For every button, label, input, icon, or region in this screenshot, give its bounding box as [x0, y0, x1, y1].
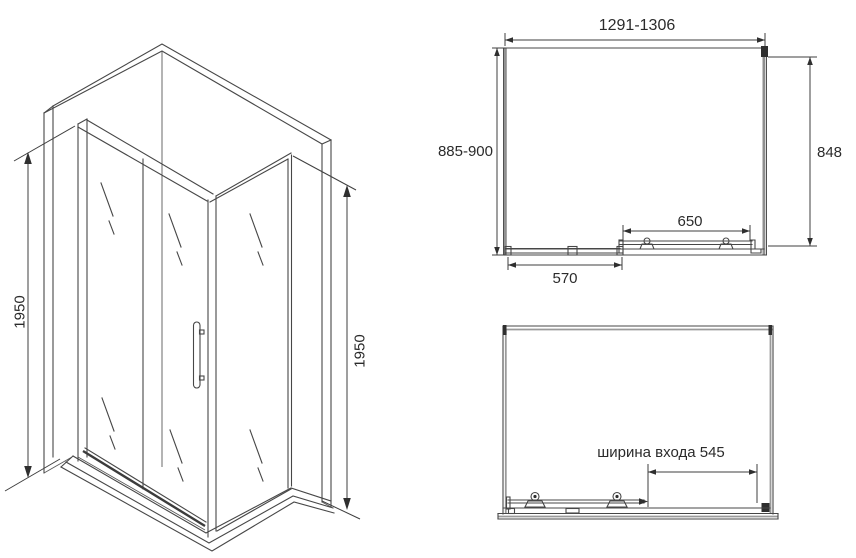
glass-reflections [101, 183, 263, 481]
front-view-door-rail [503, 493, 770, 514]
dim-label-width: 1291-1306 [599, 17, 676, 34]
dim-label-height-right: 1950 [351, 334, 368, 367]
door-handle [194, 322, 205, 388]
dim-height-left: 1950 [5, 126, 75, 491]
roller-icon [640, 238, 654, 249]
technical-drawing: 1950 1950 [0, 0, 856, 558]
top-view: 1291-1306 885-900 848 650 [438, 17, 842, 287]
dim-right-depth: 848 [768, 57, 842, 246]
dim-label-door-rail: 650 [677, 213, 702, 230]
dim-label-height-left: 1950 [11, 295, 28, 328]
shower-tray [61, 456, 334, 551]
isometric-view: 1950 1950 [5, 44, 368, 551]
top-view-outline [504, 46, 768, 255]
dim-label-entrance-width: ширина входа 545 [597, 444, 725, 461]
dim-depth: 885-900 [438, 48, 505, 255]
roller-icon [719, 238, 733, 249]
front-view: ширина входа 545 [498, 325, 778, 519]
drawing-canvas: 1950 1950 [0, 0, 856, 558]
wall-bracket-detail [769, 325, 773, 335]
wall-bracket-detail [503, 325, 507, 335]
glass-enclosure-frame [78, 119, 292, 537]
slide-direction-arrow [639, 498, 648, 504]
door-bottom-track [83, 451, 205, 526]
dim-width: 1291-1306 [505, 17, 765, 46]
front-view-tray-band [498, 514, 778, 520]
dim-label-right-depth: 848 [817, 144, 842, 161]
dim-label-fixed-panel: 570 [552, 270, 577, 287]
top-view-rails [505, 238, 764, 255]
front-view-outline [503, 325, 773, 514]
dim-label-depth: 885-900 [438, 143, 493, 160]
dim-fixed-panel: 570 [508, 257, 622, 287]
wall-bracket-detail [761, 46, 768, 57]
